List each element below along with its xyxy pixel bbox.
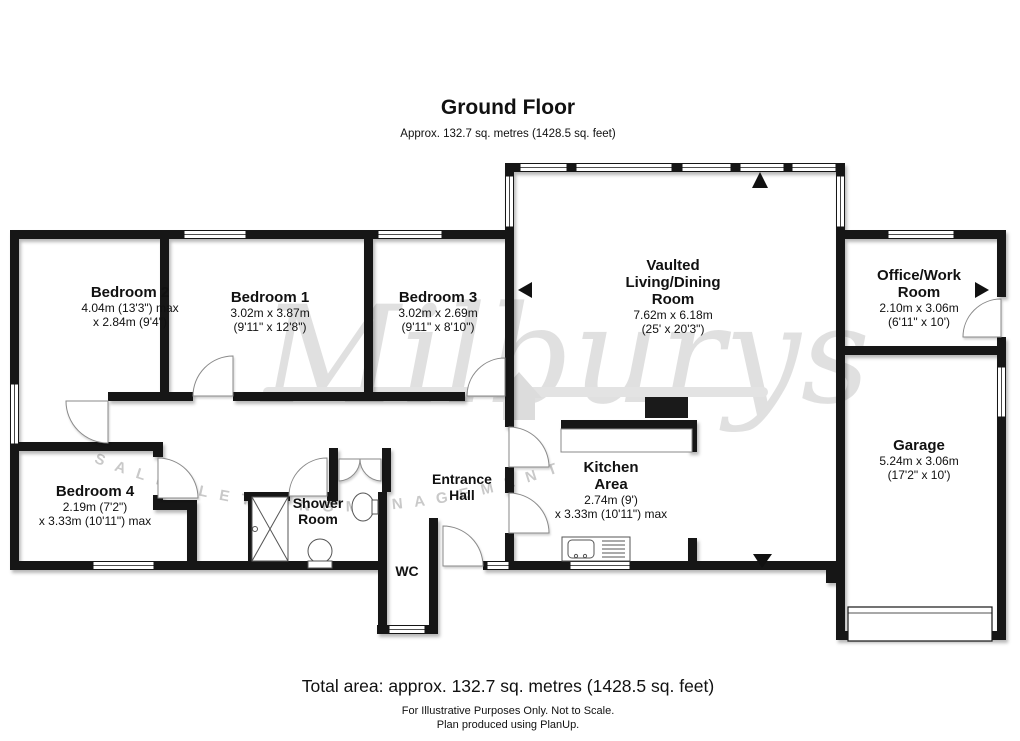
- room-label-wc: WC: [395, 564, 418, 580]
- room-label-bedroom-2: Bedroom 2 4.04m (13'3") max x 2.84m (9'4…: [81, 285, 178, 330]
- room-label-shower: Shower Room: [293, 496, 344, 527]
- floor-plan: Ground Floor Approx. 132.7 sq. metres (1…: [0, 0, 1020, 741]
- door-bedroom-1: [193, 356, 233, 396]
- disclaimer-text: For Illustrative Purposes Only. Not to S…: [402, 705, 615, 717]
- double-door-right: [360, 459, 381, 481]
- door-hall-to-living-2: [509, 493, 549, 533]
- room-label-entrance: Entrance Hall: [432, 472, 492, 503]
- door-bedroom-4: [158, 458, 198, 498]
- produced-by-text: Plan produced using PlanUp.: [437, 719, 579, 731]
- shower-tray-icon: [252, 497, 288, 561]
- room-label-bedroom-4: Bedroom 4 2.19m (7'2") x 3.33m (10'11") …: [39, 484, 151, 529]
- page-subtitle: Approx. 132.7 sq. metres (1428.5 sq. fee…: [400, 128, 615, 140]
- door-shower-room: [289, 458, 327, 496]
- total-area-text: Total area: approx. 132.7 sq. metres (14…: [302, 676, 714, 697]
- room-label-bedroom-3: Bedroom 3 3.02m x 2.69m (9'11" x 8'10"): [398, 290, 477, 335]
- toilet-icon: [308, 539, 332, 568]
- kitchen-counter: [561, 429, 692, 452]
- room-label-office: Office/Work Room 2.10m x 3.06m (6'11" x …: [877, 268, 961, 330]
- basin-icon: [352, 493, 378, 521]
- arrow-up-icon: [752, 172, 768, 188]
- room-label-living: Vaulted Living/Dining Room 7.62m x 6.18m…: [626, 258, 721, 337]
- page-title: Ground Floor: [441, 96, 575, 120]
- door-office: [963, 299, 1001, 337]
- double-door-left: [339, 459, 360, 481]
- garage-door: [848, 607, 992, 641]
- room-label-garage: Garage 5.24m x 3.06m (17'2" x 10'): [879, 438, 958, 483]
- door-bedroom-2: [66, 401, 108, 443]
- watermark-brand: Milburys: [259, 277, 870, 434]
- arrow-right-icon: [975, 282, 989, 298]
- room-label-bedroom-1: Bedroom 1 3.02m x 3.87m (9'11" x 12'8"): [230, 290, 309, 335]
- sink-icon: [562, 537, 630, 561]
- front-door: [443, 526, 483, 566]
- hob-icon: [645, 397, 688, 418]
- room-label-kitchen: Kitchen Area 2.74m (9') x 3.33m (10'11")…: [555, 460, 667, 522]
